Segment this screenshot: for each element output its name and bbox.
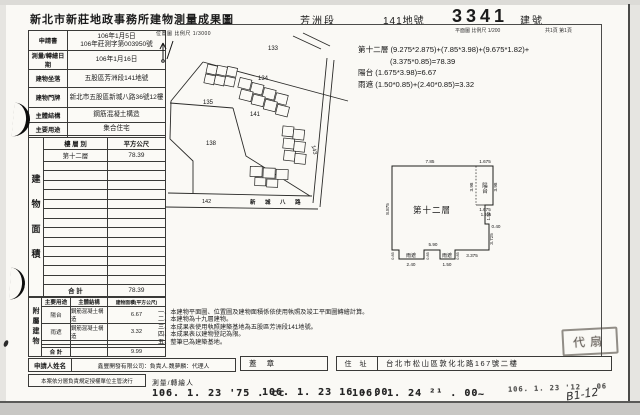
parcel-number: 142 (202, 199, 211, 205)
annex-table-total-row: 合 計 9.99 (42, 348, 165, 356)
table-row: 測量/轉繪日期 106年1月16日 (29, 51, 165, 70)
parcel-number: 135 (203, 100, 214, 106)
total-value: 78.39 (108, 285, 165, 296)
total-label: 合 計 (44, 285, 108, 296)
note-line: 二、本建物為十九層建物。 (158, 316, 398, 323)
annex-area: 3.32 (108, 324, 165, 340)
dim-label: 0.85 (456, 252, 460, 259)
floor-table-header: 樓 層 別 平方公尺 (44, 138, 165, 150)
annex-use: 雨遮 (42, 324, 71, 340)
canopy-label: 雨遮 (406, 252, 416, 259)
calc-line: (3.375*0.85)=78.39 (358, 56, 598, 68)
total-value: 9.99 (108, 348, 165, 356)
row-label: 建物坐落 (29, 70, 68, 87)
dim-label: 1.675 (479, 159, 491, 164)
floor-plan: 7.85 1.675 3.98 3.98 1.675 1.925 1.82 0.… (380, 158, 510, 270)
drawing-frame-right (601, 24, 602, 356)
annex-use: 陽台 (42, 307, 71, 323)
building-cluster (250, 166, 289, 187)
annex-area: 6.67 (108, 307, 165, 323)
scan-top-band (0, 0, 640, 5)
annex-table-header: 主要用途 主體結構 建物面積(平方公尺) (42, 298, 165, 307)
note-line: 五、整筆已為建築基地。 (158, 339, 398, 346)
table-row: 陽台 鋼筋混凝土構造 6.67 (42, 307, 165, 324)
approval-row: 本案依分層負責規定授權單位主管決行 (28, 374, 146, 387)
floor-table-side-label: 建物面積 (29, 138, 44, 296)
parcel-number: 141 (250, 112, 261, 118)
dim-label: 0.40 (492, 224, 501, 229)
floor-table-grid: 樓 層 別 平方公尺 第十二層 78.39 合 計 78.39 (44, 138, 165, 296)
building-cluster (279, 126, 309, 165)
parcel-number: 143 (310, 145, 318, 155)
parcel-number: 133 (268, 46, 279, 52)
dim-label: 7.85 (426, 159, 435, 164)
row-label: 主體結構 (29, 108, 68, 122)
empty-row (44, 190, 165, 199)
empty-row (44, 209, 165, 218)
parcel-number: 134 (258, 76, 269, 82)
floor-table-total-row: 合 計 78.39 (44, 285, 165, 296)
row-label: 申請書 (29, 31, 68, 50)
parcel-number: 138 (206, 141, 217, 147)
column-header: 建物面積(平方公尺) (108, 298, 165, 306)
table-row: 建物坐落 五股區芳洲段141地號 (29, 70, 165, 88)
column-header: 樓 層 別 (44, 138, 108, 149)
total-label: 合 計 (42, 348, 71, 356)
address-value: 台北市松山區敦化北路167號二樓 (378, 357, 611, 370)
dim-label: 3.98 (493, 182, 498, 191)
column-header: 主要用途 (42, 298, 71, 306)
note-line: 四、本成果表以建物登記為限。 (158, 331, 398, 338)
empty-row (44, 200, 165, 209)
floor-plan-labels: 第十二層 陽台 雨遮 雨遮 (406, 181, 488, 259)
document-right-edge (628, 4, 630, 401)
empty-row (44, 228, 165, 237)
tilde-mark: ~ (478, 389, 485, 400)
dim-label: 3.725 (489, 233, 494, 245)
floor-area-table: 建物面積 樓 層 別 平方公尺 第十二層 78.39 合 計 78.39 (28, 137, 166, 297)
empty-row (44, 238, 165, 247)
building-cluster (204, 62, 238, 89)
empty-row (44, 247, 165, 256)
north-arrow-icon (160, 41, 173, 62)
empty-row (44, 162, 165, 171)
date-stamp: 106. 1. 24 ²¹ . 00 (352, 388, 478, 399)
location-map: 133 134 135 141 138 142 143 新 城 八 路 (150, 30, 365, 217)
dim-label: 0.85 (391, 252, 395, 259)
annex-table-side-label: 附屬建物 (29, 298, 42, 356)
room-label: 第十二層 (413, 205, 451, 215)
dim-label: 1.50 (443, 262, 452, 267)
table-row: 主要用途 集合住宅 (29, 123, 165, 136)
applicant-name: 鑫豐開發有限公司：負責人.魏夢麟：代理人 (72, 359, 235, 371)
table-row: 雨遮 鋼筋混凝土構造 3.32 (42, 324, 165, 341)
calc-line: 第十二層 (9.275*2.875)+(7.85*3.98)+(9.675*1.… (358, 44, 598, 56)
canopy-label: 雨遮 (442, 252, 452, 259)
row-label: 測量/轉繪日期 (29, 51, 68, 69)
calc-line: 雨遮 (1.50*0.85)+(2.40*0.85)=3.32 (358, 79, 598, 91)
address-label: 住 址 (337, 357, 378, 370)
seal-cell: 蓋 章 (240, 356, 328, 371)
table-row: 申請書 106年1月5日 106年莊測字第003950號 (29, 31, 165, 51)
building-footprints (204, 62, 309, 188)
column-header: 主體結構 (71, 298, 108, 306)
annex-structure: 鋼筋混凝土構造 (71, 324, 108, 340)
plan-scale-note: 平面圖 比例尺 1/200 (455, 27, 500, 34)
table-row: 主體結構 鋼筋混凝土構造 (29, 108, 165, 123)
road-name: 新 城 八 路 (250, 198, 305, 206)
dim-label: 0.85 (426, 252, 430, 259)
dim-label: 3.375 (466, 253, 478, 258)
annex-building-table: 附屬建物 主要用途 主體結構 建物面積(平方公尺) 陽台 鋼筋混凝土構造 6.6… (28, 297, 166, 357)
row-label: 建物門牌 (29, 88, 68, 107)
page-count-note: 共1頁 第1頁 (545, 27, 572, 34)
empty-row (44, 266, 165, 275)
calc-line: 陽台 (1.675*3.98)=6.67 (358, 67, 598, 79)
empty-row (44, 276, 165, 285)
table-row: 第十二層 78.39 (44, 150, 165, 162)
annex-table-grid: 主要用途 主體結構 建物面積(平方公尺) 陽台 鋼筋混凝土構造 6.67 雨遮 … (42, 298, 165, 356)
empty-row (44, 219, 165, 228)
address-row: 住 址 台北市松山區敦化北路167號二樓 (336, 356, 612, 371)
area-calculation-block: 第十二層 (9.275*2.875)+(7.85*3.98)+(9.675*1.… (358, 44, 598, 90)
surveyor-label: 測量/轉繪人 (152, 377, 194, 387)
dim-label: 1.82 (486, 211, 491, 220)
table-row: 建物門牌 新北市五股區新城八路36號12樓 (29, 88, 165, 108)
applicant-label: 申請人姓名 (29, 359, 72, 371)
dim-label: 5.90 (429, 242, 438, 247)
building-cluster (234, 77, 294, 117)
applicant-row: 申請人姓名 鑫豐開發有限公司：負責人.魏夢麟：代理人 (28, 358, 236, 372)
empty-row (44, 171, 165, 180)
annex-structure: 鋼筋混凝土構造 (71, 307, 108, 323)
ink-stamp: 代扇 (561, 327, 618, 357)
balcony-label: 陽台 (481, 181, 488, 195)
building-info-table: 申請書 106年1月5日 106年莊測字第003950號 測量/轉繪日期 106… (28, 30, 166, 149)
dim-label: 8.875 (385, 203, 390, 215)
notes-block: 一、本建物平面圖、位置圖及建物面積係依使用執照及竣工平面圖轉繪計算。 二、本建物… (158, 309, 398, 346)
floor-name: 第十二層 (44, 150, 108, 161)
dim-label: 3.98 (469, 182, 474, 191)
drawing-frame-top (177, 24, 602, 25)
dim-label: 2.40 (407, 262, 416, 267)
row-label: 主要用途 (29, 123, 68, 135)
empty-row (44, 257, 165, 266)
empty-row (44, 181, 165, 190)
